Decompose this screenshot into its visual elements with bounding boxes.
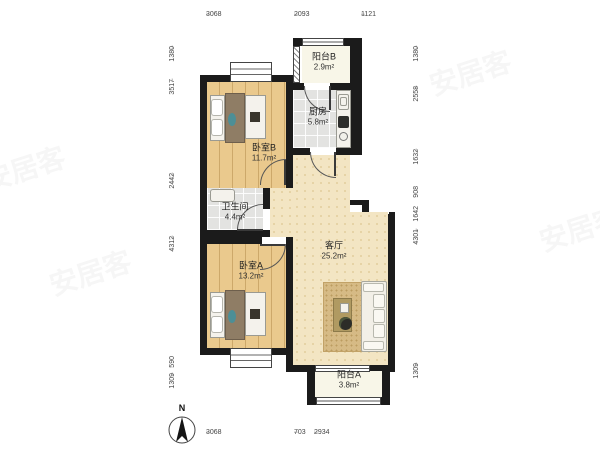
door-leaf-balcony-b [329, 86, 331, 110]
window-balcony-b-top [302, 38, 344, 46]
wall-segment [200, 237, 262, 244]
sofa-cushion [373, 309, 385, 323]
watermark: 安居客 [424, 40, 516, 104]
tv-icon [250, 309, 260, 319]
wall-segment [330, 83, 352, 90]
stove-icon [338, 116, 349, 128]
door-leaf-bathroom [237, 229, 263, 231]
dimension: ↑1380↓ [166, 45, 178, 78]
window-bedroom-b-bay [230, 62, 272, 82]
sofa-armrest [363, 341, 384, 350]
watermark: 安居客 [534, 196, 600, 260]
dimension: 1642 [410, 205, 422, 228]
dimension: ←1121→ [360, 9, 397, 19]
dimension: ↑2442↓ [166, 172, 178, 235]
dimension: 590 [166, 355, 178, 372]
dimension: ←3068→ [205, 9, 293, 19]
plant-icon [339, 317, 352, 330]
dimension: ↑1632↓ [410, 148, 422, 185]
dimension: ←2093→ [293, 9, 360, 19]
sofa-cushion [373, 324, 385, 338]
room-label-kitchen: 厨房 5.8m² [308, 106, 328, 127]
tv-icon [250, 112, 260, 122]
sofa-cushion [373, 294, 385, 308]
floorplan-canvas: 安居客 安居客 安居客 安居客 [0, 0, 600, 450]
room-label-bedroom-b: 卧室B 11.7m² [252, 142, 276, 163]
door-leaf-bedroom-a [260, 244, 285, 246]
room-label-balcony-b: 阳台B 2.9m² [312, 51, 336, 72]
wall-segment [286, 75, 293, 188]
window-bedroom-a-bay [230, 348, 272, 368]
dimension: →703← [293, 427, 313, 437]
sofa-armrest [363, 283, 384, 292]
watermark: 安居客 [44, 240, 136, 304]
wall-segment [381, 397, 390, 405]
sink-basin [340, 97, 347, 106]
wall-segment [307, 397, 316, 405]
wall-segment [200, 75, 207, 355]
dimension: ↑4312↓ [166, 235, 178, 355]
wall-segment [382, 371, 390, 398]
pillow [211, 316, 223, 333]
wall-segment [307, 371, 315, 398]
bed-cushion [228, 310, 236, 323]
dimension: ↑3517↓ [166, 78, 178, 172]
wall-segment [286, 237, 293, 372]
dimension: ↑4301↓ [410, 228, 422, 362]
outside-patch [350, 155, 400, 200]
table-decor [340, 303, 349, 313]
dimension: ←2934→ [313, 427, 397, 437]
north-label: N [164, 404, 200, 413]
floor-hall [270, 188, 293, 237]
wall-segment [293, 83, 304, 90]
door-leaf-bedroom-b [284, 160, 286, 185]
wall-segment [388, 212, 395, 372]
room-label-bathroom: 卫生间 4.4m² [221, 201, 248, 222]
room-label-bedroom-a: 卧室A 13.2m² [239, 260, 264, 281]
window-balcony-b-side [293, 46, 300, 83]
window-balcony-a-bottom [316, 397, 381, 405]
dimension: ↑1309↓ [166, 372, 178, 408]
watermark: 安居客 [0, 136, 70, 200]
dimension: ←3068→ [205, 427, 293, 437]
dimension: ↑2558↓ [410, 85, 422, 148]
bathroom-sink [210, 189, 235, 202]
door-leaf-kitchen [334, 152, 336, 176]
pillow [211, 99, 223, 116]
compass-arrow-icon [165, 413, 199, 447]
wall-segment [200, 230, 270, 237]
room-label-balcony-a: 阳台A 3.8m² [337, 369, 361, 390]
room-label-living-room: 客厅 25.2m² [322, 240, 347, 261]
bed-cushion [228, 113, 236, 126]
north-compass: N [164, 404, 200, 450]
dimension: 908 [410, 185, 422, 205]
dimension: ↑1380↓ [410, 45, 422, 85]
pillow [211, 296, 223, 313]
dimension: ↑1309↓ [410, 362, 422, 408]
pillow [211, 119, 223, 136]
kettle-icon [339, 132, 348, 141]
